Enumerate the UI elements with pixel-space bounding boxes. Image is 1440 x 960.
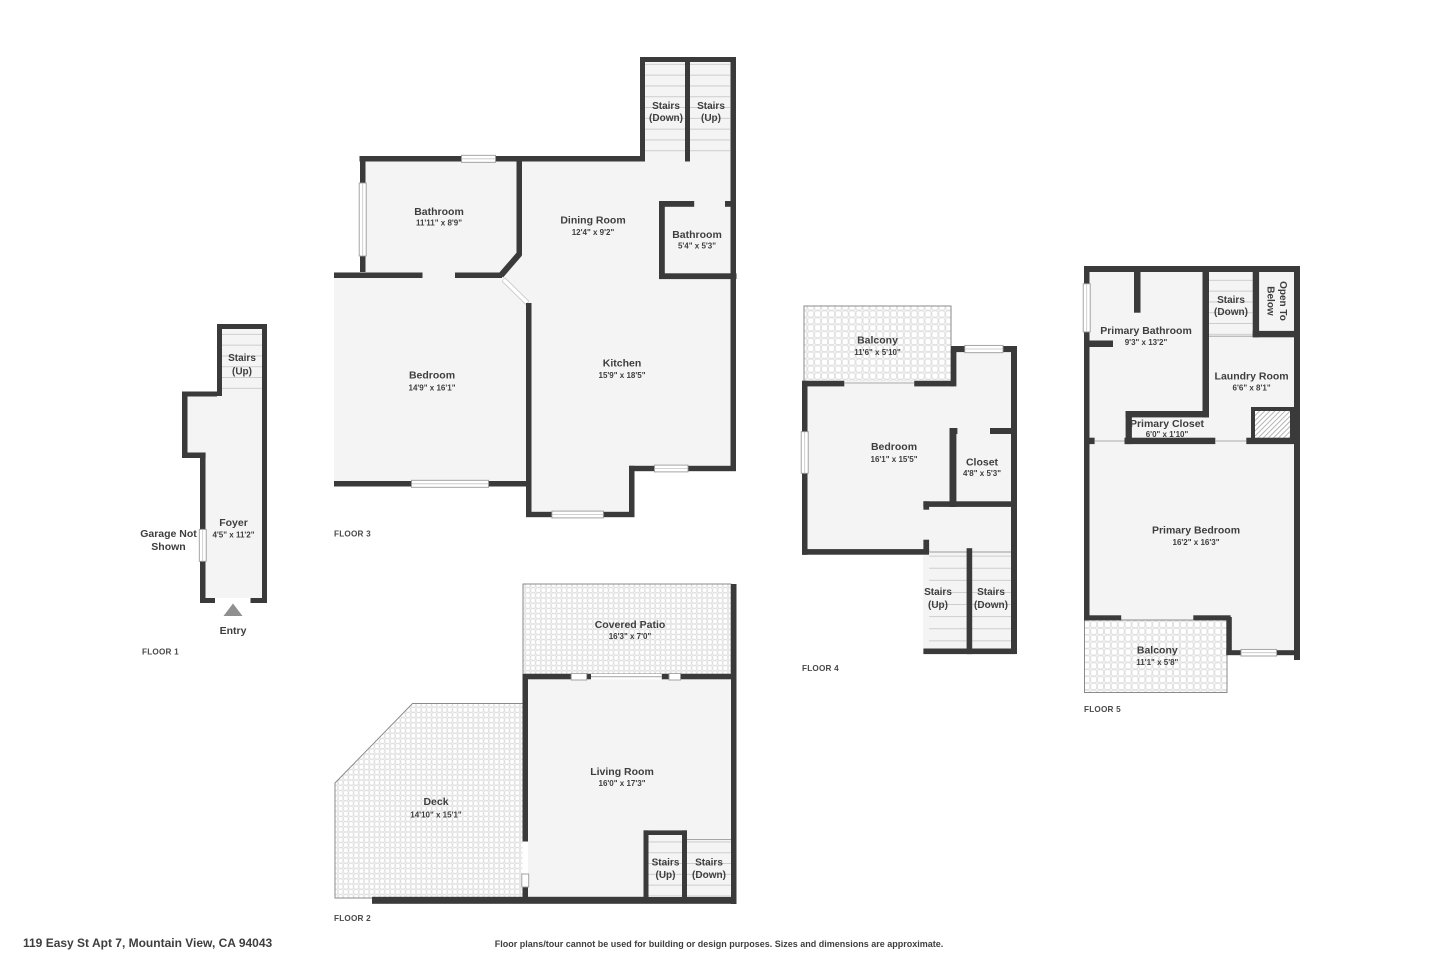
svg-text:Kitchen: Kitchen xyxy=(603,357,642,369)
svg-text:Stairs: Stairs xyxy=(924,587,952,598)
svg-text:Stairs: Stairs xyxy=(1217,295,1245,306)
svg-text:Stairs: Stairs xyxy=(652,101,680,112)
svg-text:Stairs: Stairs xyxy=(697,101,725,112)
svg-text:11'11" x 8'9": 11'11" x 8'9" xyxy=(416,219,462,228)
svg-text:12'4" x 9'2": 12'4" x 9'2" xyxy=(572,228,615,237)
svg-text:6'6" x 8'1": 6'6" x 8'1" xyxy=(1233,384,1271,393)
svg-text:16'3" x 7'0": 16'3" x 7'0" xyxy=(609,632,652,641)
svg-text:16'2" x 16'3": 16'2" x 16'3" xyxy=(1173,538,1220,547)
svg-text:9'3" x 13'2": 9'3" x 13'2" xyxy=(1125,338,1168,347)
svg-text:16'0" x 17'3": 16'0" x 17'3" xyxy=(599,779,646,788)
svg-text:FLOOR 2: FLOOR 2 xyxy=(334,914,371,923)
svg-text:Bathroom: Bathroom xyxy=(414,206,464,218)
svg-text:Open To: Open To xyxy=(1277,281,1288,321)
svg-text:(Down): (Down) xyxy=(974,600,1008,611)
svg-text:Primary Closet: Primary Closet xyxy=(1130,418,1205,430)
svg-text:Bedroom: Bedroom xyxy=(409,369,455,381)
svg-text:Closet: Closet xyxy=(966,457,999,469)
svg-text:Stairs: Stairs xyxy=(695,857,723,868)
svg-text:Deck: Deck xyxy=(423,796,448,808)
svg-text:(Up): (Up) xyxy=(701,113,721,124)
svg-text:Bedroom: Bedroom xyxy=(871,441,917,453)
svg-text:(Up): (Up) xyxy=(928,600,948,611)
svg-text:119 Easy St Apt 7, Mountain Vi: 119 Easy St Apt 7, Mountain View, CA 940… xyxy=(23,936,273,950)
svg-text:Balcony: Balcony xyxy=(1137,645,1178,657)
svg-text:Dining Room: Dining Room xyxy=(560,215,625,227)
svg-text:Living Room: Living Room xyxy=(590,766,654,778)
svg-text:Stairs: Stairs xyxy=(652,857,680,868)
svg-text:(Up): (Up) xyxy=(656,870,676,881)
svg-text:(Down): (Down) xyxy=(1214,307,1248,318)
svg-text:Primary Bedroom: Primary Bedroom xyxy=(1152,525,1240,537)
svg-text:Laundry Room: Laundry Room xyxy=(1215,371,1289,383)
svg-text:Floor plans/tour cannot be use: Floor plans/tour cannot be used for buil… xyxy=(495,939,944,949)
svg-text:FLOOR 4: FLOOR 4 xyxy=(802,664,839,673)
svg-text:Garage Not: Garage Not xyxy=(140,528,197,540)
svg-text:Stairs: Stairs xyxy=(228,353,256,364)
svg-text:4'8" x 5'3": 4'8" x 5'3" xyxy=(963,469,1001,478)
svg-text:(Down): (Down) xyxy=(692,870,726,881)
svg-text:16'1" x 15'5": 16'1" x 15'5" xyxy=(871,455,918,464)
svg-text:(Down): (Down) xyxy=(649,113,683,124)
svg-text:FLOOR 3: FLOOR 3 xyxy=(334,530,371,539)
svg-text:Primary Bathroom: Primary Bathroom xyxy=(1100,325,1192,337)
svg-text:Covered Patio: Covered Patio xyxy=(595,619,666,631)
svg-text:11'6" x 5'10": 11'6" x 5'10" xyxy=(854,348,901,357)
svg-text:Entry: Entry xyxy=(220,625,247,637)
svg-text:Balcony: Balcony xyxy=(857,334,898,346)
svg-text:15'9" x 18'5": 15'9" x 18'5" xyxy=(599,371,646,380)
svg-text:Shown: Shown xyxy=(151,541,185,553)
svg-text:5'4" x 5'3": 5'4" x 5'3" xyxy=(678,242,716,251)
svg-text:11'1" x 5'8": 11'1" x 5'8" xyxy=(1136,658,1178,667)
svg-text:Bathroom: Bathroom xyxy=(672,229,722,241)
svg-text:14'10" x 15'1": 14'10" x 15'1" xyxy=(410,811,462,820)
svg-text:4'5" x 11'2": 4'5" x 11'2" xyxy=(212,531,254,540)
svg-text:FLOOR 5: FLOOR 5 xyxy=(1084,705,1121,714)
svg-text:Below: Below xyxy=(1265,286,1276,316)
svg-text:Foyer: Foyer xyxy=(219,517,248,529)
svg-text:Stairs: Stairs xyxy=(977,587,1005,598)
svg-text:14'9" x 16'1": 14'9" x 16'1" xyxy=(409,383,456,392)
svg-text:FLOOR 1: FLOOR 1 xyxy=(142,648,179,657)
svg-text:(Up): (Up) xyxy=(232,367,252,378)
